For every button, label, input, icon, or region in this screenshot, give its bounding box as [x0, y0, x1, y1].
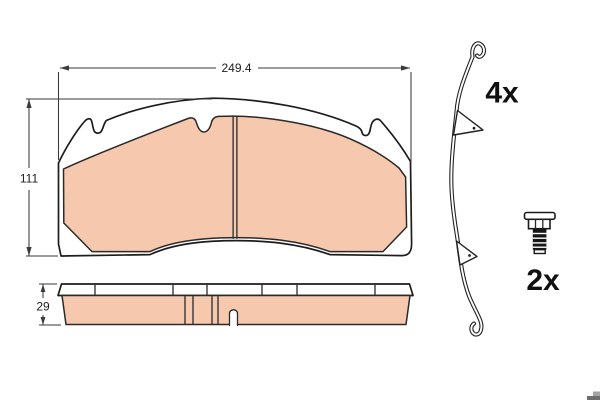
spring-qty-label: 4x [485, 77, 519, 110]
front-view [59, 98, 412, 256]
height-dim-label: 111 [20, 172, 39, 186]
bolt-tip [534, 250, 545, 254]
technical-drawing-canvas: 249.4 111 [0, 0, 600, 400]
thickness-dimension: 29 [36, 284, 61, 325]
spring-lower-tab [457, 241, 478, 265]
thickness-dim-label: 29 [36, 300, 50, 314]
bolt [525, 213, 556, 254]
bolt-head-top [525, 213, 556, 220]
spring-clip [451, 43, 484, 334]
spring-wire [451, 43, 484, 334]
width-dim-label: 249.4 [221, 61, 251, 75]
bolt-qty-label: 2x [526, 264, 560, 297]
side-backplate [58, 284, 413, 296]
bolt-head-body [529, 219, 551, 228]
side-wear-notch [230, 310, 238, 327]
spring-upper-tab [454, 111, 484, 136]
side-view [58, 284, 413, 327]
brake-pad-drawing: 249.4 111 [0, 0, 600, 400]
logo-fragment [587, 392, 600, 400]
